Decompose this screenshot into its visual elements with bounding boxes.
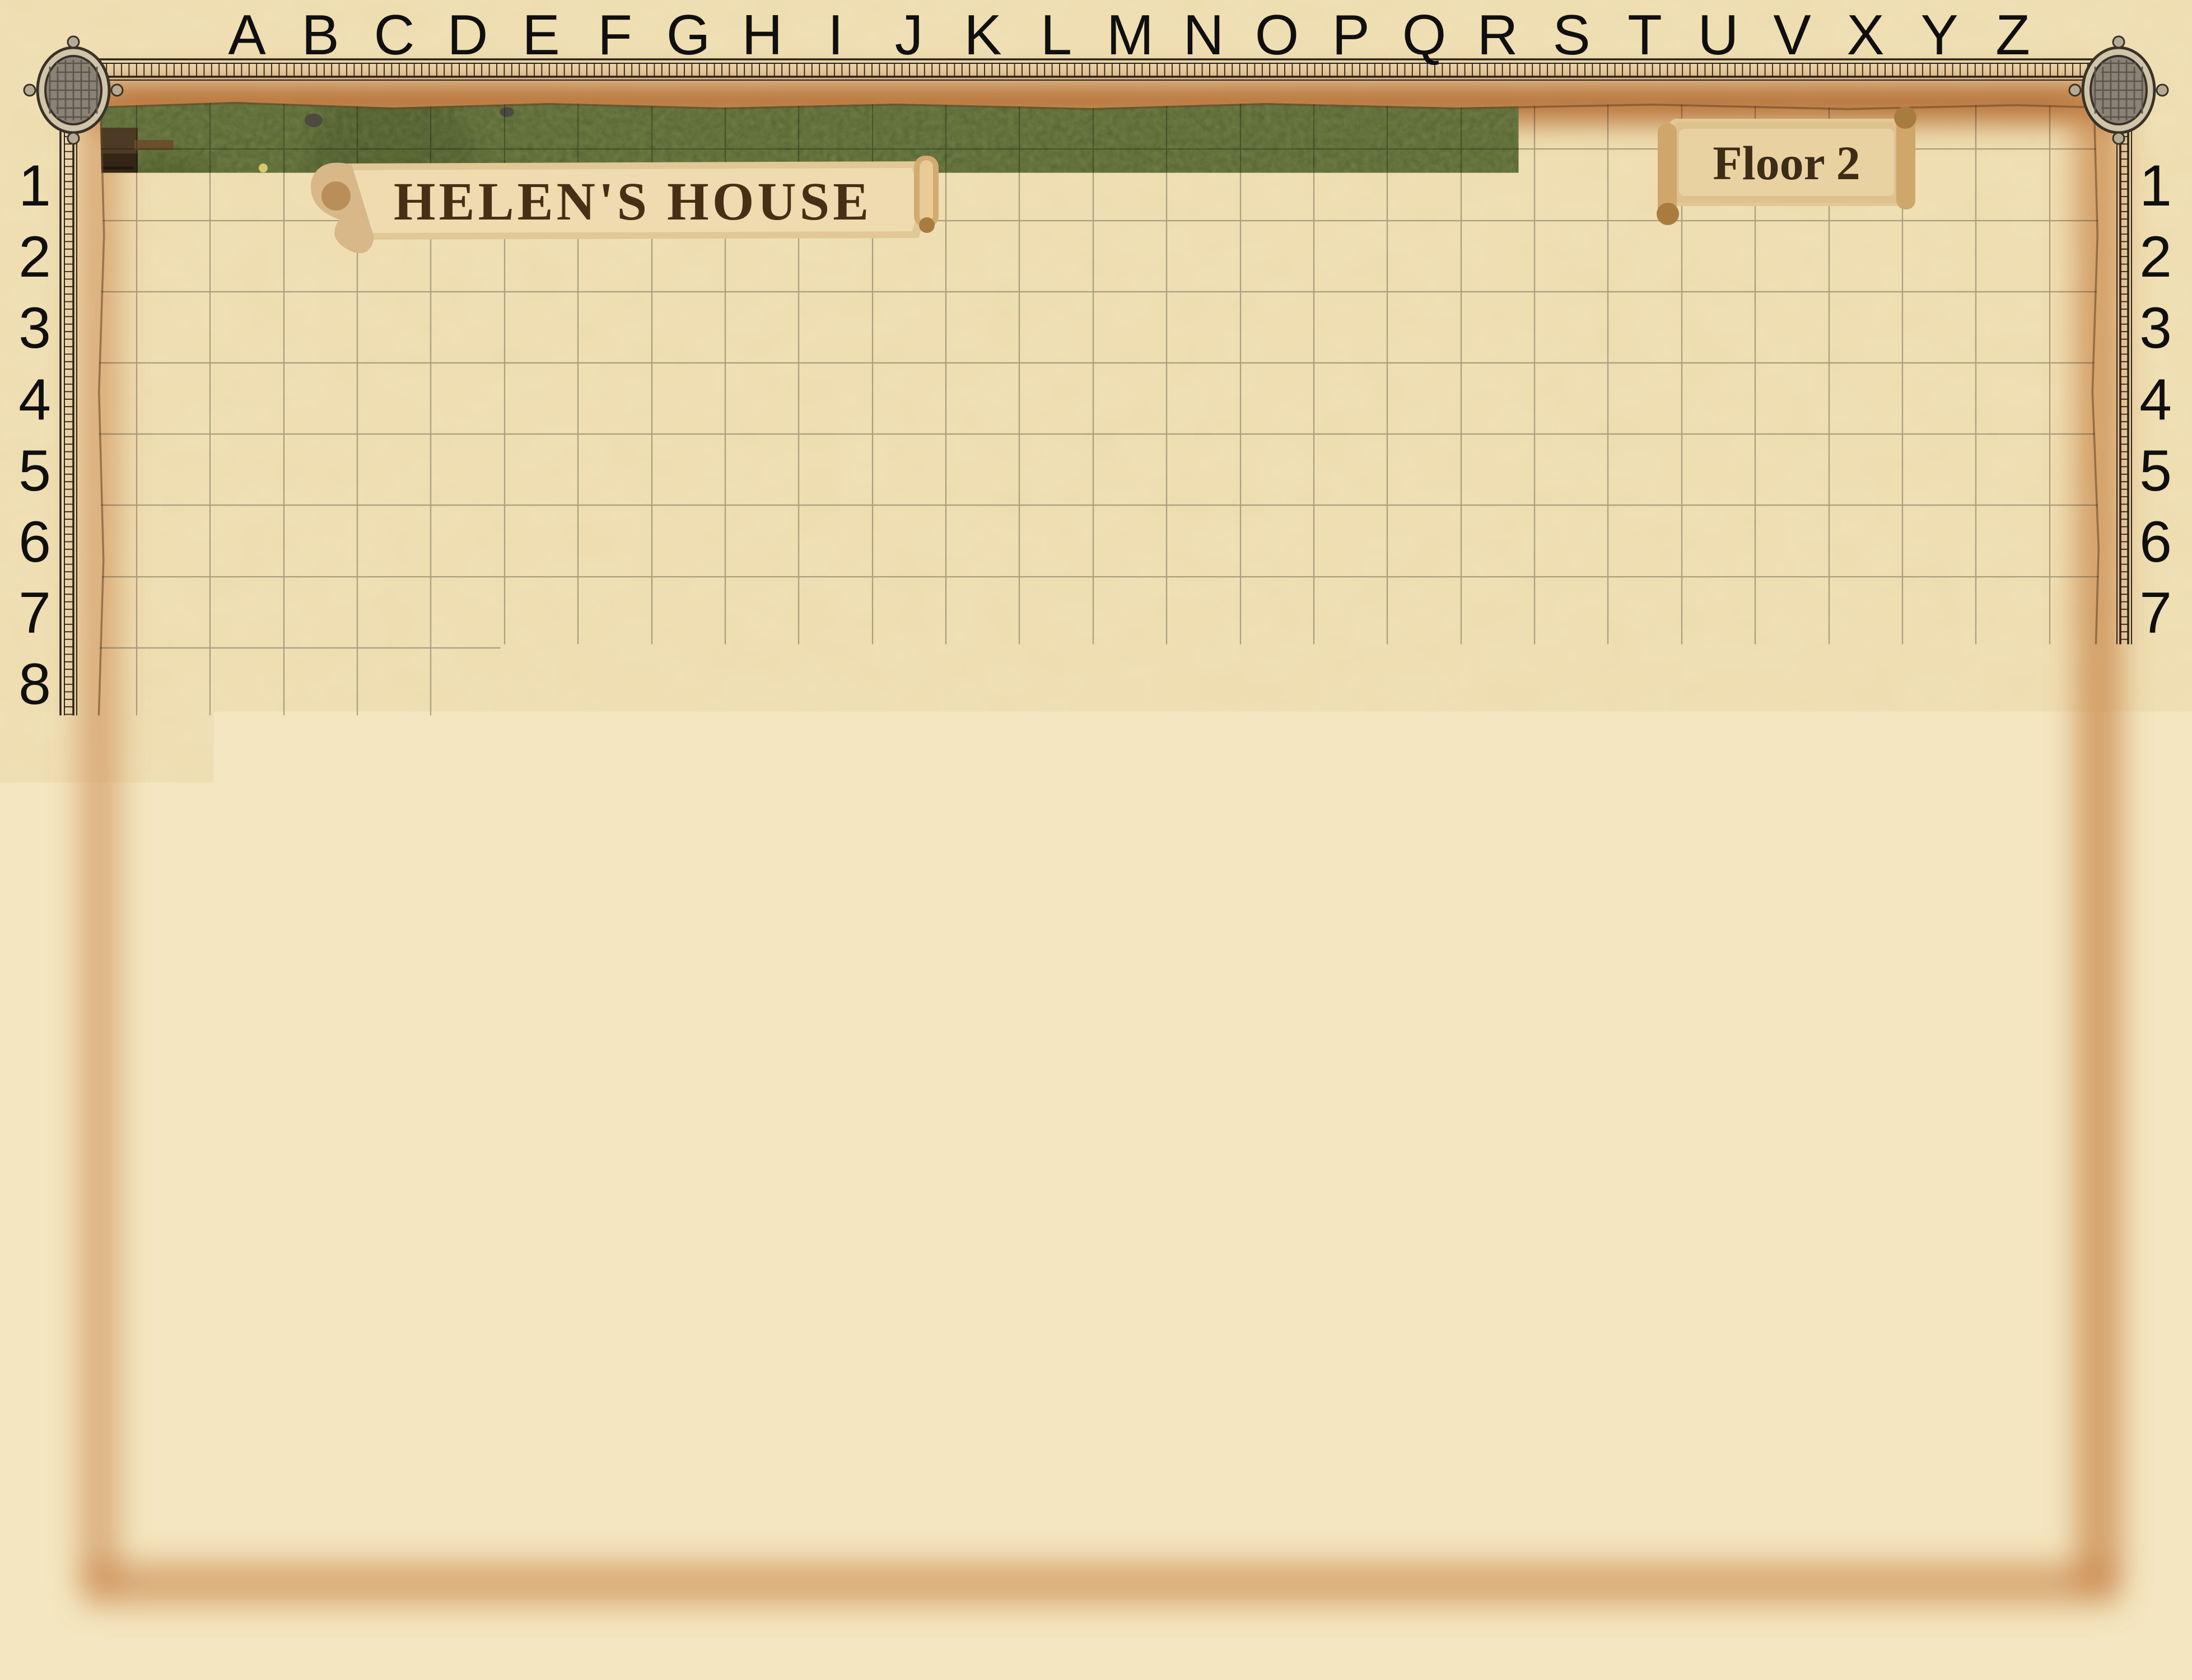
svg-text:S: S: [1552, 1616, 1590, 1679]
svg-text:T: T: [1627, 4, 1662, 67]
svg-text:M: M: [1107, 4, 1154, 67]
svg-text:8: 8: [2139, 652, 2172, 717]
svg-text:4: 4: [18, 367, 51, 432]
svg-text:8: 8: [18, 652, 51, 717]
svg-text:4: 4: [2139, 367, 2172, 432]
svg-text:D: D: [447, 1616, 488, 1679]
svg-text:U: U: [1698, 4, 1739, 67]
svg-text:C: C: [374, 1616, 415, 1679]
svg-text:15: 15: [2123, 1151, 2188, 1216]
svg-text:3: 3: [18, 296, 51, 361]
svg-text:Floor 2: Floor 2: [1713, 136, 1860, 190]
svg-text:13: 13: [2123, 1008, 2188, 1073]
svg-text:Q: Q: [1402, 4, 1447, 67]
svg-text:J: J: [895, 4, 924, 67]
svg-text:7: 7: [2139, 581, 2172, 646]
svg-text:11: 11: [2125, 866, 2186, 931]
svg-text:G: G: [666, 1616, 711, 1679]
svg-text:C: C: [374, 4, 415, 67]
svg-text:H: H: [742, 4, 783, 67]
svg-text:Харьков Форум: Харьков Форум: [1919, 1635, 2158, 1674]
svg-text:E: E: [522, 4, 559, 67]
svg-text:V: V: [1773, 1616, 1811, 1679]
svg-text:E: E: [522, 1616, 559, 1679]
svg-text:10: 10: [2123, 795, 2188, 860]
svg-text:P: P: [1332, 4, 1369, 67]
svg-text:HELEN'S HOUSE: HELEN'S HOUSE: [394, 171, 872, 231]
svg-text:1: 1: [2139, 153, 2172, 218]
svg-text:H: H: [742, 1616, 783, 1679]
svg-text:A: A: [228, 4, 266, 67]
svg-text:16: 16: [2, 1222, 67, 1287]
svg-text:V: V: [1773, 4, 1811, 67]
svg-text:B: B: [301, 4, 339, 67]
svg-text:17: 17: [2123, 1293, 2188, 1358]
svg-text:15: 15: [2, 1151, 67, 1216]
svg-text:12: 12: [2, 937, 67, 1002]
svg-text:P: P: [1332, 1616, 1369, 1679]
svg-text:19: 19: [2, 1436, 67, 1501]
svg-text:18: 18: [2123, 1364, 2188, 1429]
svg-text:B: B: [301, 1616, 339, 1679]
svg-text:K: K: [964, 1616, 1001, 1679]
svg-text:2: 2: [18, 225, 51, 290]
svg-text:5: 5: [18, 438, 51, 503]
svg-text:I: I: [828, 4, 843, 67]
svg-text:Q: Q: [1402, 1616, 1447, 1679]
svg-text:16: 16: [2123, 1222, 2188, 1287]
svg-text:7: 7: [18, 581, 51, 646]
svg-text:9: 9: [2139, 724, 2172, 788]
svg-text:F: F: [598, 4, 632, 67]
svg-text:2: 2: [2139, 225, 2172, 290]
svg-text:K: K: [964, 4, 1001, 67]
svg-text:3: 3: [2139, 296, 2172, 361]
svg-text:Y: Y: [1920, 4, 1958, 67]
svg-text:F: F: [598, 1616, 632, 1679]
svg-text:5: 5: [2139, 438, 2172, 503]
svg-text:6: 6: [18, 510, 51, 575]
svg-text:U: U: [1698, 1616, 1739, 1679]
svg-text:Floor 1: Floor 1: [342, 1507, 482, 1558]
svg-text:D: D: [447, 4, 488, 67]
svg-text:O: O: [1255, 1616, 1299, 1679]
svg-text:17: 17: [2, 1293, 67, 1358]
svg-text:N: N: [1183, 4, 1224, 67]
svg-text:9: 9: [18, 724, 51, 788]
svg-text:G: G: [666, 4, 711, 67]
svg-text:S: S: [1552, 4, 1590, 67]
svg-text:X: X: [1846, 1616, 1884, 1679]
svg-text:T: T: [1627, 1616, 1662, 1679]
svg-text:10: 10: [2, 795, 67, 860]
svg-text:I: I: [828, 1616, 843, 1679]
svg-text:6: 6: [2139, 510, 2172, 575]
svg-text:14: 14: [2, 1080, 67, 1145]
svg-text:14: 14: [2123, 1080, 2188, 1145]
svg-text:Basement: Basement: [1651, 1468, 1833, 1516]
svg-text:A: A: [228, 1616, 266, 1679]
svg-text:R: R: [1477, 4, 1518, 67]
svg-text:1: 1: [18, 153, 51, 218]
svg-text:13: 13: [2, 1008, 67, 1073]
svg-text:X: X: [1846, 4, 1884, 67]
svg-text:19: 19: [2123, 1436, 2188, 1501]
svg-text:18: 18: [2, 1364, 67, 1429]
svg-text:12: 12: [2123, 937, 2188, 1002]
svg-text:11: 11: [4, 866, 65, 931]
svg-text:O: O: [1255, 4, 1299, 67]
svg-text:N: N: [1183, 1616, 1224, 1679]
svg-text:L: L: [1041, 4, 1072, 67]
svg-text:M: M: [1107, 1616, 1154, 1679]
svg-text:R: R: [1477, 1616, 1518, 1679]
svg-text:J: J: [895, 1616, 924, 1679]
svg-text:L: L: [1041, 1616, 1072, 1679]
svg-text:Z: Z: [1995, 4, 2030, 67]
